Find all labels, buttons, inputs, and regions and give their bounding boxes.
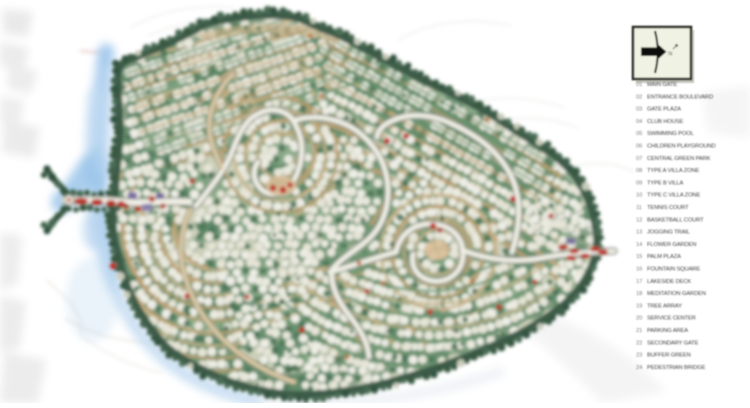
svg-text:20: 20 bbox=[636, 316, 642, 322]
svg-text:04: 04 bbox=[636, 119, 643, 125]
svg-text:N: N bbox=[668, 52, 673, 58]
svg-text:24: 24 bbox=[636, 365, 643, 371]
svg-text:SERVICE CENTER: SERVICE CENTER bbox=[647, 316, 696, 322]
svg-text:15: 15 bbox=[636, 254, 642, 260]
svg-text:10: 10 bbox=[636, 193, 642, 199]
svg-text:FLOWER GARDEN: FLOWER GARDEN bbox=[647, 242, 696, 248]
svg-text:LAKESIDE DECK: LAKESIDE DECK bbox=[647, 279, 691, 285]
svg-text:21: 21 bbox=[636, 328, 642, 334]
svg-text:23: 23 bbox=[636, 353, 642, 359]
svg-text:JOGGING TRAIL: JOGGING TRAIL bbox=[647, 230, 691, 236]
svg-text:07: 07 bbox=[636, 156, 642, 162]
svg-text:SECONDARY GATE: SECONDARY GATE bbox=[647, 340, 699, 346]
svg-text:MEDITATION GARDEN: MEDITATION GARDEN bbox=[647, 291, 706, 297]
svg-text:05: 05 bbox=[636, 131, 642, 137]
svg-text:BASKETBALL COURT: BASKETBALL COURT bbox=[647, 217, 704, 223]
svg-text:13: 13 bbox=[636, 230, 642, 236]
svg-text:CHILDREN PLAYGROUND: CHILDREN PLAYGROUND bbox=[647, 144, 716, 150]
svg-text:PALM PLAZA: PALM PLAZA bbox=[647, 254, 681, 260]
svg-text:CENTRAL GREEN PARK: CENTRAL GREEN PARK bbox=[647, 156, 711, 162]
svg-text:TYPE B VILLA: TYPE B VILLA bbox=[647, 180, 684, 186]
svg-text:11: 11 bbox=[636, 205, 642, 211]
svg-text:GATE PLAZA: GATE PLAZA bbox=[647, 107, 681, 113]
svg-text:BUFFER GREEN: BUFFER GREEN bbox=[647, 353, 691, 359]
svg-text:PARKING AREA: PARKING AREA bbox=[647, 328, 688, 334]
svg-text:PEDESTRIAN BRIDGE: PEDESTRIAN BRIDGE bbox=[647, 365, 706, 371]
svg-text:18: 18 bbox=[636, 291, 642, 297]
svg-text:19: 19 bbox=[636, 303, 642, 309]
svg-text:SWIMMING POOL: SWIMMING POOL bbox=[647, 131, 695, 137]
svg-text:TENNIS COURT: TENNIS COURT bbox=[647, 205, 689, 211]
svg-text:06: 06 bbox=[636, 144, 642, 150]
svg-text:TYPE A VILLA ZONE: TYPE A VILLA ZONE bbox=[647, 168, 700, 174]
svg-text:08: 08 bbox=[636, 168, 642, 174]
svg-text:ENTRANCE BOULEVARD: ENTRANCE BOULEVARD bbox=[647, 94, 713, 100]
svg-text:01: 01 bbox=[636, 82, 642, 88]
svg-text:14: 14 bbox=[636, 242, 643, 248]
svg-text:12: 12 bbox=[636, 217, 642, 223]
svg-text:03: 03 bbox=[636, 107, 642, 113]
svg-text:02: 02 bbox=[636, 94, 642, 100]
svg-text:16: 16 bbox=[636, 267, 642, 273]
svg-text:CLUB HOUSE: CLUB HOUSE bbox=[647, 119, 683, 125]
svg-text:TREE ARRAY: TREE ARRAY bbox=[647, 303, 682, 309]
svg-text:17: 17 bbox=[636, 279, 642, 285]
svg-text:TYPE C VILLA ZONE: TYPE C VILLA ZONE bbox=[647, 193, 700, 199]
svg-text:09: 09 bbox=[636, 180, 642, 186]
svg-text:22: 22 bbox=[636, 340, 642, 346]
svg-text:FOUNTAIN SQUARE: FOUNTAIN SQUARE bbox=[647, 267, 700, 273]
svg-text:MAIN GATE: MAIN GATE bbox=[647, 82, 677, 88]
